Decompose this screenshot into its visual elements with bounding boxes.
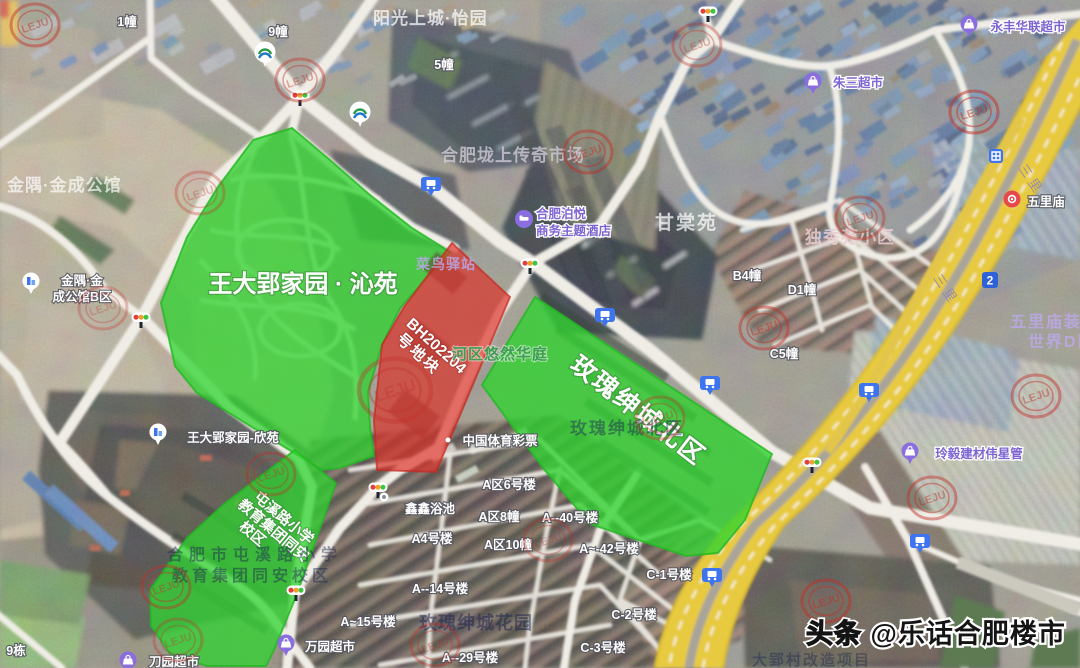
svg-text:王大郢家园 · 沁苑: 王大郢家园 · 沁苑 (208, 270, 397, 298)
svg-text:A区6号楼: A区6号楼 (482, 477, 536, 492)
svg-text:头条: 头条 (806, 619, 862, 649)
svg-text:世界D区: 世界D区 (1028, 333, 1080, 351)
svg-text:C-1号楼: C-1号楼 (646, 567, 692, 582)
svg-text:金隅·金: 金隅·金 (60, 273, 103, 288)
svg-text:菜鸟驿站: 菜鸟驿站 (415, 256, 476, 272)
svg-text:A--40号楼: A--40号楼 (542, 510, 599, 525)
svg-text:1幢: 1幢 (117, 14, 137, 29)
svg-text:商务主题酒店: 商务主题酒店 (536, 223, 612, 238)
svg-text:A~15号楼: A~15号楼 (340, 614, 396, 629)
svg-text:大郢村改造项目: 大郢村改造项目 (752, 651, 871, 668)
svg-text:9幢: 9幢 (268, 24, 288, 39)
svg-text:A~-42号楼: A~-42号楼 (579, 541, 639, 556)
svg-text:教育集团同安校区: 教育集团同安校区 (172, 566, 332, 585)
svg-text:五里庙: 五里庙 (1027, 194, 1065, 209)
svg-text:永丰华联超市: 永丰华联超市 (989, 19, 1066, 34)
svg-text:C-3号楼: C-3号楼 (580, 640, 626, 655)
svg-text:中国体育彩票: 中国体育彩票 (462, 433, 538, 448)
svg-text:2: 2 (987, 274, 994, 288)
svg-text:朱三超市: 朱三超市 (833, 75, 884, 90)
svg-text:阳光上城·怡园: 阳光上城·怡园 (373, 8, 488, 28)
svg-text:C-2号楼: C-2号楼 (611, 607, 657, 622)
svg-text:合肥市屯溪路小学: 合肥市屯溪路小学 (167, 545, 343, 564)
svg-text:王大郢家园-欣苑: 王大郢家园-欣苑 (187, 430, 279, 445)
svg-text:B4幢: B4幢 (733, 268, 762, 283)
svg-text:五里庙装: 五里庙装 (1010, 312, 1080, 331)
svg-text:鑫鑫浴池: 鑫鑫浴池 (404, 501, 456, 516)
svg-text:D1幢: D1幢 (788, 282, 817, 297)
svg-text:玲毅建材伟星管: 玲毅建材伟星管 (935, 446, 1023, 461)
svg-text:甘棠苑: 甘棠苑 (655, 211, 718, 234)
svg-text:合肥泊悦: 合肥泊悦 (536, 206, 587, 221)
svg-text:河区悠然华庭: 河区悠然华庭 (452, 345, 548, 363)
svg-text:金隅·金成公馆: 金隅·金成公馆 (6, 175, 122, 195)
svg-text:9栋: 9栋 (6, 643, 26, 658)
svg-text:5幢: 5幢 (434, 57, 454, 72)
svg-text:万园超市: 万园超市 (304, 639, 356, 654)
svg-text:A4号楼: A4号楼 (412, 531, 453, 546)
svg-text:A区8幢: A区8幢 (479, 509, 520, 524)
svg-text:A--14号楼: A--14号楼 (412, 581, 469, 596)
